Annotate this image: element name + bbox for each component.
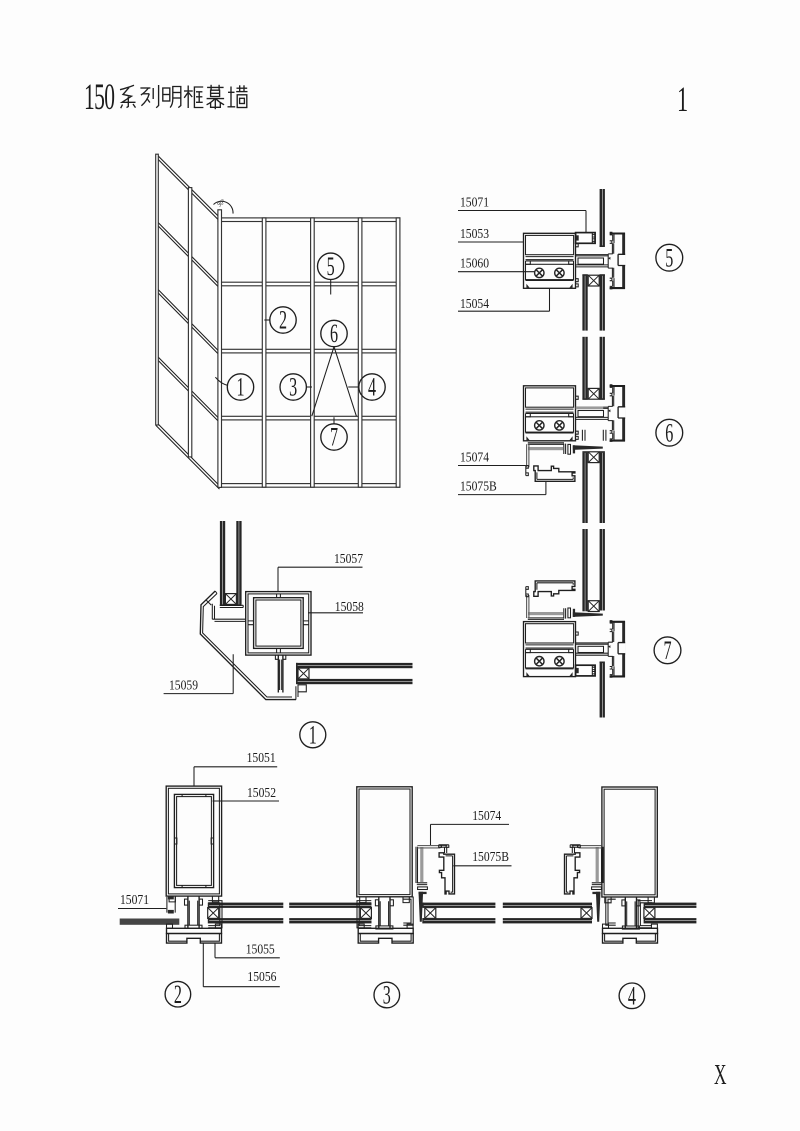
svg-text:6: 6 bbox=[665, 418, 673, 447]
svg-text:15056: 15056 bbox=[247, 969, 277, 984]
svg-text:15060: 15060 bbox=[460, 256, 489, 271]
svg-text:X: X bbox=[714, 1060, 727, 1091]
svg-text:4: 4 bbox=[628, 982, 636, 1011]
svg-text:15057: 15057 bbox=[334, 551, 364, 566]
svg-text:5: 5 bbox=[327, 252, 335, 281]
svg-text:15051: 15051 bbox=[247, 750, 276, 765]
svg-text:1: 1 bbox=[677, 80, 688, 120]
svg-text:5: 5 bbox=[665, 243, 673, 272]
svg-text:7: 7 bbox=[663, 636, 671, 665]
svg-text:15052: 15052 bbox=[247, 785, 276, 800]
svg-text:15053: 15053 bbox=[460, 226, 489, 241]
svg-text:15055: 15055 bbox=[246, 941, 275, 956]
svg-text:2: 2 bbox=[174, 980, 182, 1009]
svg-text:3: 3 bbox=[383, 981, 391, 1010]
svg-text:15075B: 15075B bbox=[472, 849, 509, 864]
svg-text:7: 7 bbox=[330, 423, 338, 452]
svg-text:15059: 15059 bbox=[169, 677, 198, 692]
svg-text:15071: 15071 bbox=[120, 892, 149, 907]
svg-text:15074: 15074 bbox=[460, 450, 490, 465]
svg-text:1: 1 bbox=[309, 721, 317, 750]
svg-text:15074: 15074 bbox=[472, 808, 502, 823]
svg-text:15071: 15071 bbox=[460, 195, 489, 210]
svg-text:4: 4 bbox=[368, 373, 376, 402]
svg-text:1: 1 bbox=[236, 373, 244, 402]
svg-text:150: 150 bbox=[84, 76, 114, 118]
svg-text:2: 2 bbox=[279, 306, 287, 335]
svg-text:3: 3 bbox=[289, 373, 297, 402]
svg-text:15075B: 15075B bbox=[460, 479, 497, 494]
svg-text:6: 6 bbox=[330, 319, 338, 348]
svg-text:15054: 15054 bbox=[460, 296, 490, 311]
svg-text:15058: 15058 bbox=[335, 599, 364, 614]
